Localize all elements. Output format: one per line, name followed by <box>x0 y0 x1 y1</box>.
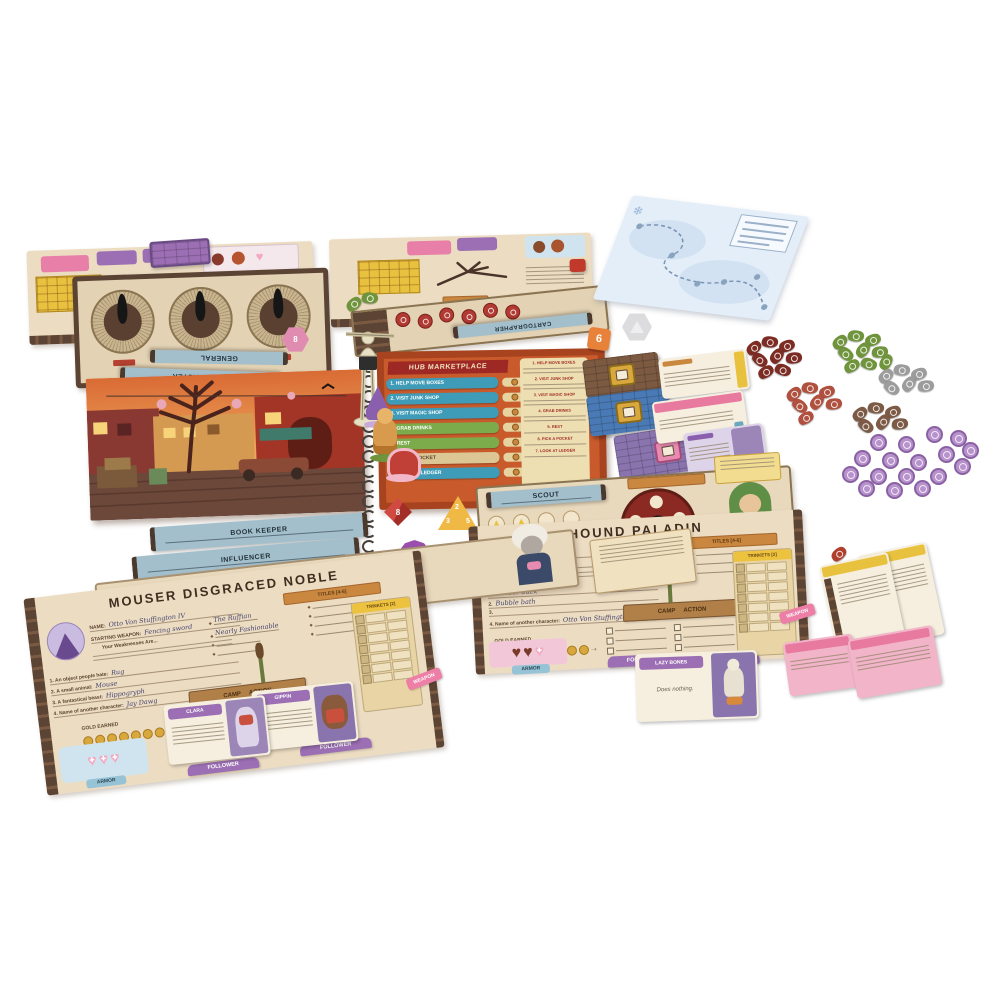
card-header-chip <box>662 358 692 367</box>
mouse-character-art <box>500 520 571 593</box>
prompt-label: 2. <box>488 602 492 608</box>
token-dot <box>212 253 224 265</box>
salmon-leave-token <box>825 397 843 412</box>
die-value: 6 <box>595 333 603 346</box>
strip-top-banner <box>627 473 706 489</box>
text-line <box>791 661 849 670</box>
art-accent <box>527 561 542 571</box>
trinket-cell <box>746 562 766 572</box>
purple-coin <box>854 450 871 467</box>
purple-coin <box>858 480 875 497</box>
book-emblem-icon <box>608 362 636 387</box>
red-leaf-single <box>831 542 851 558</box>
follower-box <box>97 250 137 265</box>
purple-coin <box>914 480 931 497</box>
art-vest <box>325 708 344 724</box>
text-line <box>524 455 586 457</box>
option-line <box>615 628 666 632</box>
standee-red-creature <box>384 448 418 482</box>
trinket-icon <box>359 645 369 655</box>
trinkets-table <box>353 607 420 688</box>
dial-pointer <box>195 291 206 321</box>
purple-coin <box>938 446 955 463</box>
card-text-lines <box>836 571 891 608</box>
camp-checklist-col2 <box>674 621 735 654</box>
heart-icon: ♥✚ <box>87 753 98 770</box>
trinket-icon <box>362 674 372 684</box>
purple-coin <box>910 454 927 471</box>
trinket-cell <box>747 582 767 592</box>
die-facet <box>630 321 644 333</box>
gold-coin <box>142 728 153 739</box>
token-dot <box>533 241 545 253</box>
spiral-ring <box>362 465 376 478</box>
armor-tag: ARMOR <box>512 664 550 675</box>
camp-option-row <box>606 635 666 645</box>
gold-coin <box>154 727 165 738</box>
gold-coin <box>579 645 590 656</box>
text-line <box>524 399 586 401</box>
leaf-cluster-dark-red <box>746 336 816 382</box>
tracker-dial <box>168 286 234 352</box>
purple-coin <box>926 426 943 443</box>
heart-icon: ♥✚ <box>109 751 120 768</box>
heart-icon: ♥ <box>523 645 533 661</box>
checkbox <box>674 634 681 641</box>
detail-header: 4. GRAB DRINKS <box>524 407 586 413</box>
token-dot <box>232 251 245 264</box>
detail-lines <box>524 455 586 457</box>
trinket-cell <box>768 581 788 591</box>
nameplate-scout: SCOUT <box>486 484 607 508</box>
red-round-token <box>504 304 520 320</box>
option-line <box>683 634 734 638</box>
text-line <box>526 274 584 277</box>
camp-option-row <box>606 625 666 635</box>
insect-sketch <box>429 258 520 290</box>
purple-coin-pool <box>842 424 972 496</box>
menu-details-page: 1. HELP MOVE BOXES 2. VISIT JUNK SHOP 3.… <box>520 357 590 488</box>
trinket-cell <box>746 572 766 582</box>
camp-option-row <box>675 641 735 651</box>
d4-right: 5 <box>466 518 470 525</box>
art-figure <box>234 706 260 748</box>
card-art <box>313 683 357 743</box>
book-emblem-icon <box>615 399 643 424</box>
card-art <box>225 697 269 757</box>
gold-coin <box>567 645 578 656</box>
trinket-cell <box>767 561 787 571</box>
checkbox <box>607 647 614 654</box>
card-header-chip <box>687 433 713 442</box>
trinket-icon <box>738 613 747 622</box>
art-accent <box>726 696 742 705</box>
standee-head <box>377 408 393 424</box>
purple-coin <box>870 434 887 451</box>
follower-card-lazy-bones: LAZY BONES Does nothing. <box>635 650 759 722</box>
armor-box <box>407 240 451 255</box>
trinkets-panel: TRINKETS [2] <box>732 548 797 657</box>
purple-coin <box>842 466 859 483</box>
text-line <box>524 415 586 417</box>
trail-path <box>593 195 810 321</box>
stats-grid <box>357 259 420 295</box>
mouser-art-circle <box>45 620 87 662</box>
cattail-decor <box>258 656 265 682</box>
token-dot <box>551 239 564 252</box>
detail-lines <box>524 415 586 421</box>
tracker-dial <box>90 289 156 355</box>
trinkets-panel: TRINKETS [2] <box>350 596 423 712</box>
heart-icon: ♥ <box>511 645 521 661</box>
name-label: NAME: <box>89 623 106 631</box>
trinket-cell <box>747 592 767 602</box>
text-line <box>526 278 584 281</box>
prompt-label: 3. <box>489 610 493 616</box>
detail-header: 6. PICK A POCKET <box>524 435 586 441</box>
text-line <box>523 367 585 369</box>
trinket-icon <box>736 573 745 582</box>
trinket-cell <box>768 591 788 601</box>
diamond-icon: ◆ <box>309 622 313 627</box>
text-line <box>523 383 585 385</box>
card-title-ribbon: LAZY BONES <box>639 656 703 670</box>
heart-icon: ♥✚ <box>534 644 544 660</box>
text-line <box>524 431 586 433</box>
text-line <box>524 443 586 445</box>
die-value: 8 <box>396 508 400 517</box>
diamond-icon: ◆ <box>308 613 312 618</box>
checkbox <box>606 637 613 644</box>
book-title: HUB MARKETPLACE <box>409 363 488 371</box>
leaf-cluster-salmon <box>786 382 856 428</box>
purple-coin <box>898 436 915 453</box>
detail-header: 5. REST <box>524 423 586 429</box>
trinket-icon <box>361 664 371 674</box>
red-round-token <box>417 313 433 329</box>
note-lines <box>599 536 684 563</box>
tabletop-scene: STILT KIN BARBARIAN ♥ GENERAL <box>0 0 1000 1000</box>
purple-coin <box>962 442 979 459</box>
card-text-lines <box>171 719 225 747</box>
heart-icon: ♥ <box>256 249 264 264</box>
token-panel <box>525 235 586 259</box>
detail-lines <box>524 431 586 433</box>
card-text-lines <box>790 650 850 673</box>
d4-top: 2 <box>455 504 459 511</box>
card-body-text: Does nothing. <box>644 686 706 694</box>
trinket-cell <box>748 602 768 612</box>
spiral-ring <box>362 495 376 508</box>
trinket-icon <box>736 563 745 572</box>
leaf-cluster-gray <box>878 364 948 406</box>
text-line <box>526 282 584 285</box>
prompt-handwriting: Jay Dawg <box>126 697 158 709</box>
art-mountain <box>51 632 82 661</box>
option-line <box>684 644 735 648</box>
diamond-icon: ◆ <box>307 604 311 609</box>
text-line <box>523 371 585 373</box>
note-lines <box>720 457 774 470</box>
armor-panel: ♥ ♥ ♥✚ <box>488 638 567 668</box>
detail-lines <box>523 383 585 389</box>
snow-trail-map: ❄ <box>593 195 810 321</box>
trinkets-table <box>734 559 796 636</box>
trinket-cell <box>372 672 393 683</box>
dial-pointer <box>273 288 284 318</box>
scout-note-card <box>714 452 782 485</box>
mini-card-purple <box>149 238 211 268</box>
hub-marketplace-banner: HUB MARKETPLACE <box>387 360 508 375</box>
card-title: CLARA <box>186 707 204 715</box>
detail-header: 3. VISIT MAGIC SHOP <box>523 391 585 397</box>
option-line <box>683 624 734 628</box>
menu-item: 2. VISIT JUNK SHOP <box>386 392 498 405</box>
text-line <box>523 387 585 389</box>
purple-coin <box>898 468 915 485</box>
detail-header: 1. HELP MOVE BOXES <box>523 359 585 365</box>
camp-option-row <box>674 621 734 631</box>
prompt-handwriting: Rug <box>111 667 125 677</box>
trinket-icon <box>357 635 367 645</box>
white-d20-die <box>622 312 652 342</box>
detail-header: 2. VISIT JUNK SHOP <box>523 375 585 381</box>
green-leaf-pair <box>346 292 376 322</box>
menu-item: 1. HELP MOVE BOXES <box>386 377 498 390</box>
arrow-icon: ➝ <box>591 645 597 653</box>
standee-base <box>386 474 416 482</box>
purple-coin <box>930 468 947 485</box>
gray-leave-token <box>917 379 935 394</box>
text-line <box>524 403 586 405</box>
die-value: 8 <box>293 335 297 344</box>
wheel-slot <box>649 495 663 509</box>
action-label: ACTION <box>683 606 706 613</box>
prompt-handwriting: Mouse <box>95 679 118 690</box>
option-line <box>615 638 666 642</box>
trinket-icon <box>737 583 746 592</box>
trinket-icon <box>356 625 366 635</box>
dial-pointer <box>117 294 128 324</box>
text-line <box>665 378 731 387</box>
trinket-icon <box>739 623 748 632</box>
dark-red-leave-token <box>785 351 803 366</box>
detail-lines <box>524 443 586 445</box>
prompt-handwriting: Bubble bath <box>495 597 535 607</box>
purple-coin <box>886 482 903 499</box>
purple-coin <box>954 458 971 475</box>
heart-icon: ♥✚ <box>98 752 109 769</box>
diamond-icon: ◆ <box>310 631 314 636</box>
card-title: GIPPIN <box>274 693 291 701</box>
red-round-token <box>438 307 454 323</box>
character-sheet-mouser: MOUSER DISGRACED NOBLE TITLES [4-6] ◆ Th… <box>23 550 444 795</box>
art-figure <box>723 666 744 697</box>
trinket-cell <box>749 622 769 632</box>
red-round-token <box>482 302 498 318</box>
weapon-handwriting: Fencing sword <box>144 623 193 637</box>
book-left-page <box>86 369 367 521</box>
orange-d6-die: 6 <box>587 327 612 352</box>
red-round-token <box>461 308 477 324</box>
text-line <box>721 465 775 470</box>
red-dice-pair <box>569 259 585 272</box>
follower-card-clara: CLARA <box>163 695 271 765</box>
checkbox <box>674 624 681 631</box>
spiral-ring <box>362 480 376 493</box>
card-text-lines <box>663 363 731 390</box>
checkbox <box>606 627 613 634</box>
text-line <box>524 419 586 421</box>
option-line <box>616 648 667 652</box>
follower-box <box>457 237 497 251</box>
camp-label: CAMP <box>658 608 676 615</box>
card-art <box>711 652 757 717</box>
camp-option-row <box>674 631 734 641</box>
gold-earned-label: GOLD EARNED <box>81 721 118 731</box>
d4-left: 3 <box>446 518 450 525</box>
menu-item: 3. VISIT MAGIC SHOP <box>387 407 499 420</box>
trinket-icon <box>360 654 370 664</box>
card-title: LAZY BONES <box>655 659 687 666</box>
detail-lines <box>523 367 585 373</box>
trinket-cell <box>748 612 768 622</box>
menu-item: 4. GRAB DRINKS <box>387 422 499 435</box>
purple-coin <box>882 452 899 469</box>
detail-header: 7. LOOK AT LEDGER <box>524 447 586 453</box>
checkbox <box>675 644 682 651</box>
trinket-icon <box>355 615 365 625</box>
trinket-cell <box>767 571 787 581</box>
marketplace-illustration <box>86 369 367 521</box>
card-title-ribbon: CLARA <box>168 703 223 720</box>
art-accent <box>239 714 254 725</box>
trinket-icon <box>737 593 746 602</box>
trinket-icon <box>738 603 747 612</box>
detail-lines <box>524 399 586 405</box>
armor-box <box>41 255 90 273</box>
